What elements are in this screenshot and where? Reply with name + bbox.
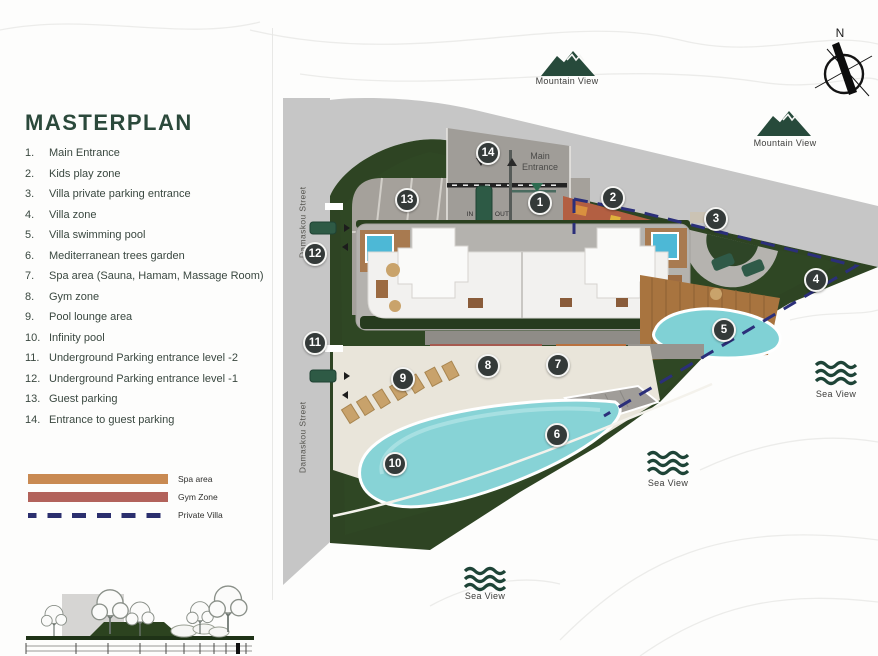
mountain-view-label: Mountain View [735,138,835,149]
legend-item-label: Villa swimming pool [49,230,270,241]
legend-item-number: 6. [25,251,49,262]
masterplan-legend: 1.Main Entrance 2.Kids play zone 3.Villa… [25,148,270,435]
sea-view-waves-icon [648,453,688,474]
sea-view-waves-icon [465,569,505,590]
plan-marker-2: 2 [601,186,625,210]
legend-item-label: Villa private parking entrance [49,189,270,200]
legend-item-label: Kids play zone [49,169,270,180]
zone-legend-row: Gym Zone [28,492,223,502]
legend-item: 9.Pool lounge area [25,312,270,323]
tree-sketch [209,586,247,632]
legend-item: 11.Underground Parking entrance level -2 [25,353,270,364]
legend-item-label: Mediterranean trees garden [49,251,270,262]
legend-item-number: 2. [25,169,49,180]
page-title: MASTERPLAN [25,110,193,136]
plan-marker-3: 3 [704,207,728,231]
spa-area-color-bar [28,474,168,484]
legend-item-label: Villa zone [49,210,270,221]
zone-legend-label: Gym Zone [178,492,218,502]
plan-marker-12: 12 [303,242,327,266]
plan-marker-5: 5 [712,318,736,342]
gate-in-label: IN [460,211,480,219]
zone-legend-row: Spa area [28,474,223,484]
legend-item-number: 1. [25,148,49,159]
plan-marker-9: 9 [391,367,415,391]
legend-item-number: 12. [25,374,49,385]
plan-marker-8: 8 [476,354,500,378]
private-villa-dashed-line [28,513,168,518]
sea-view-label: Sea View [796,389,876,400]
scale-bar [26,646,252,651]
zone-legend-label: Private Villa [178,510,223,520]
main-entrance-label: Main Entrance [512,151,568,174]
sea-view-label: Sea View [628,478,708,489]
legend-item: 4.Villa zone [25,210,270,221]
legend-item-number: 7. [25,271,49,282]
legend-item: 10.Infinity pool [25,333,270,344]
plan-marker-13: 13 [395,188,419,212]
legend-item-label: Entrance to guest parking [49,415,270,426]
gate-out-label: OUT [490,211,514,219]
legend-item-label: Infinity pool [49,333,270,344]
legend-item: 7.Spa area (Sauna, Hamam, Massage Room) [25,271,270,282]
sea-view-waves-icon [816,363,856,384]
bush-sketch [209,627,229,637]
legend-item-label: Underground Parking entrance level -1 [49,374,270,385]
legend-item-number: 9. [25,312,49,323]
legend-item: 5.Villa swimming pool [25,230,270,241]
plan-marker-1: 1 [528,191,552,215]
legend-item-number: 11. [25,353,49,364]
mountain-view-label: Mountain View [517,76,617,87]
legend-item-label: Spa area (Sauna, Hamam, Massage Room) [49,271,270,282]
plan-marker-6: 6 [545,423,569,447]
legend-item: 3.Villa private parking entrance [25,189,270,200]
legend-item-label: Gym zone [49,292,270,303]
zone-legend-label: Spa area [178,474,213,484]
plan-marker-4: 4 [804,268,828,292]
legend-item: 14.Entrance to guest parking [25,415,270,426]
mountain-view-icon [541,51,595,76]
legend-item-label: Underground Parking entrance level -2 [49,353,270,364]
section-elevation-sketch [12,556,257,656]
amenity-roof [425,331,640,345]
legend-item-number: 13. [25,394,49,405]
legend-item-label: Pool lounge area [49,312,270,323]
mountain-view-icon [757,111,811,136]
zone-legend-row: Private Villa [28,510,223,520]
scale-bar-ticks [26,643,246,654]
legend-item: 8.Gym zone [25,292,270,303]
legend-item: 13.Guest parking [25,394,270,405]
compass-icon [815,42,872,96]
deck-table [710,288,722,300]
legend-item-number: 8. [25,292,49,303]
legend-item: 1.Main Entrance [25,148,270,159]
legend-item: 6.Mediterranean trees garden [25,251,270,262]
legend-item: 2.Kids play zone [25,169,270,180]
plan-marker-11: 11 [303,331,327,355]
sea-view-label: Sea View [445,591,525,602]
legend-item-label: Main Entrance [49,148,270,159]
scale-bar-end [236,643,240,654]
legend-item-number: 4. [25,210,49,221]
bush-sketch [171,625,197,637]
plan-marker-14: 14 [476,141,500,165]
legend-item-number: 10. [25,333,49,344]
legend-item-label: Guest parking [49,394,270,405]
legend-item-number: 5. [25,230,49,241]
zone-color-legend: Spa area Gym Zone Private Villa [28,474,223,528]
plan-marker-7: 7 [546,353,570,377]
legend-item-number: 14. [25,415,49,426]
legend-item-number: 3. [25,189,49,200]
masterplan-page: MASTERPLAN 1.Main Entrance 2.Kids play z… [0,0,878,656]
plan-marker-10: 10 [383,452,407,476]
legend-item: 12.Underground Parking entrance level -1 [25,374,270,385]
street-name-label: Damaskou Street [298,391,309,483]
gym-zone-color-bar [28,492,168,502]
compass-north-label: N [830,26,850,41]
